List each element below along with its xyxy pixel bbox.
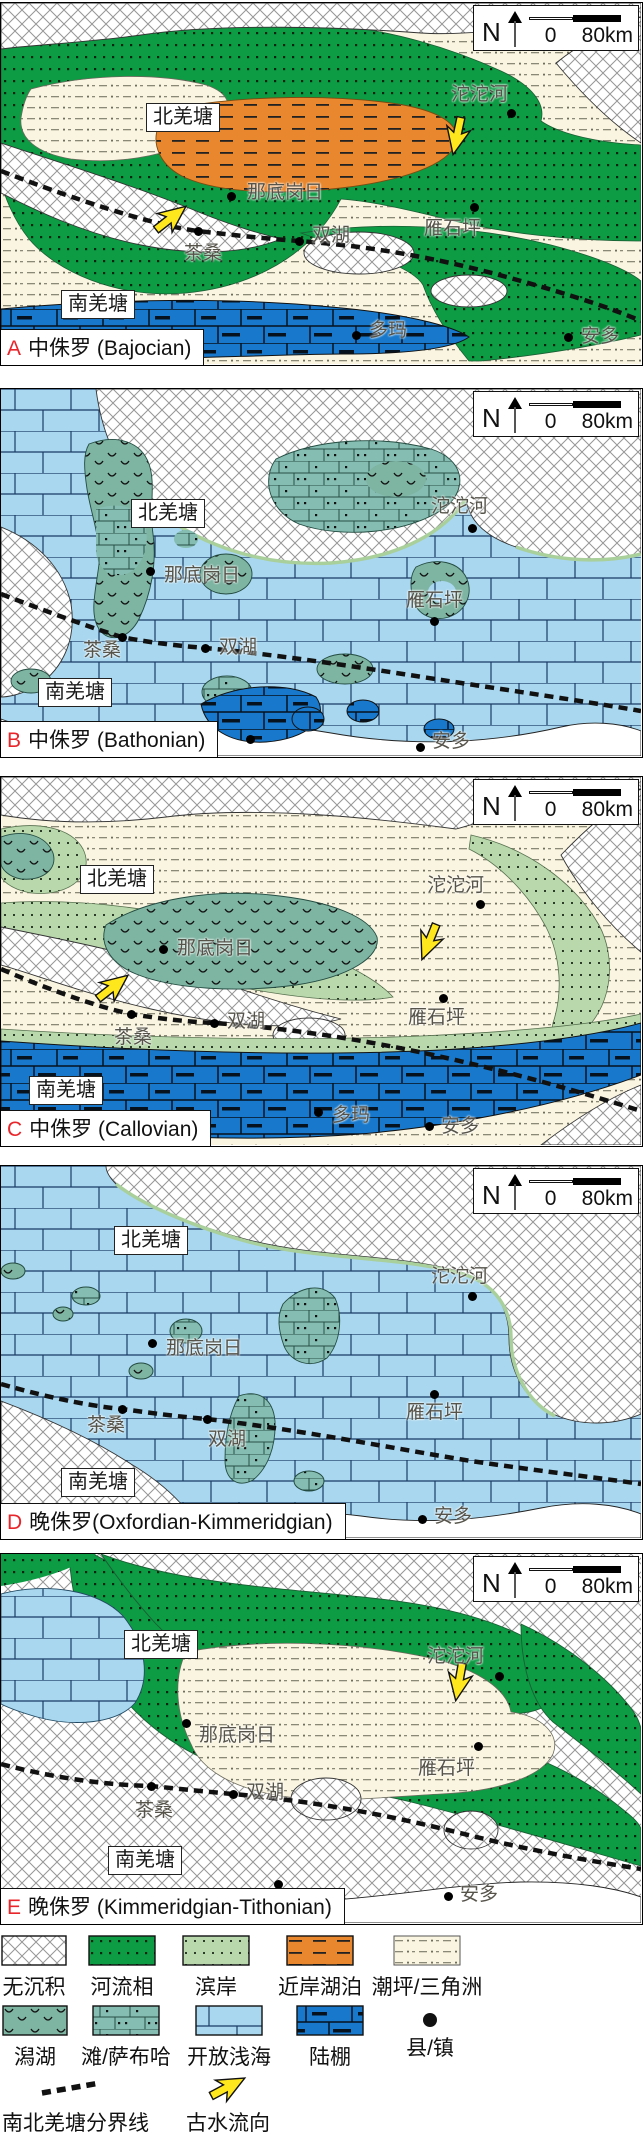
panel-letter: B <box>7 729 21 752</box>
scale-bar: 080km <box>529 1566 633 1597</box>
legend-swatch-tidal-flat-delta <box>394 1936 460 1965</box>
town-label: 多玛 <box>369 321 407 341</box>
region-label-box: 南羌塘 <box>108 1846 182 1875</box>
town-label: 双湖 <box>227 1012 265 1032</box>
sabkha-patch <box>294 1471 324 1491</box>
town-dot <box>227 192 236 201</box>
no-deposition-lens <box>431 275 507 307</box>
town-label: 雁石坪 <box>424 219 481 239</box>
town-label: 双湖 <box>312 226 350 246</box>
town-dot <box>229 1790 238 1799</box>
legend-swatch-fluvial <box>89 1936 155 1965</box>
town-dot <box>182 1719 191 1728</box>
town-dot <box>444 1892 453 1901</box>
town-dot <box>418 1515 427 1524</box>
scale-bar: 080km <box>529 789 633 820</box>
map-panel-bathonian: N 080km 北羌塘南羌塘沱沱河那底岗日雁石坪茶桑双湖安多 B中侏罗 (Bat… <box>0 388 643 758</box>
north-label: N <box>482 1570 501 1596</box>
map-panel-oxfordian-kimmeridgian: N 080km 北羌塘南羌塘沱沱河那底岗日雁石坪茶桑双湖安多 D晚侏罗(Oxfo… <box>0 1165 643 1540</box>
town-label: 双湖 <box>246 1783 284 1803</box>
town-label: 茶桑 <box>114 1028 152 1048</box>
north-arrow-icon <box>508 785 522 821</box>
town-dot <box>201 644 210 653</box>
lagoon-patch <box>366 461 426 497</box>
town-label: 那底岗日 <box>199 1726 275 1746</box>
north-arrow-icon <box>508 397 522 433</box>
town-label: 那底岗日 <box>166 1339 242 1359</box>
panel-stage: 晚侏罗 (Kimmeridgian-Tithonian) <box>28 1896 332 1919</box>
lagoon-patch <box>53 1307 73 1321</box>
region-label-box: 南羌塘 <box>61 290 135 319</box>
town-dot <box>564 333 573 342</box>
panel-letter: C <box>7 1118 22 1141</box>
scale-bar: 080km <box>529 15 633 46</box>
town-dot <box>314 1108 323 1117</box>
town-dot <box>430 617 439 626</box>
town-label: 安多 <box>441 1117 479 1137</box>
town-label: 茶桑 <box>87 1416 125 1436</box>
legend-item-tidal-flat-delta: 潮坪/三角洲 <box>362 1935 492 1998</box>
north-arrow-icon <box>508 1562 522 1598</box>
legend-swatch-nearshore-lake <box>287 1936 353 1965</box>
shelf-patch <box>292 707 324 731</box>
sabkha-patch <box>279 1288 340 1364</box>
boundary-line-swatch <box>38 2075 104 2101</box>
town-dot <box>416 743 425 752</box>
town-label: 沱沱河 <box>427 876 484 896</box>
region-label-box: 南羌塘 <box>61 1468 135 1497</box>
north-label: N <box>482 793 501 819</box>
town-dot <box>470 203 479 212</box>
town-dot <box>194 227 203 236</box>
region-label-box: 南羌塘 <box>38 678 112 707</box>
town-label: 安多 <box>432 732 470 752</box>
town-label: 多玛 <box>332 1106 370 1126</box>
panel-title: B中侏罗 (Bathonian) <box>1 721 218 757</box>
no-deposition-lens <box>291 1778 361 1820</box>
panel-letter: E <box>7 1896 21 1919</box>
town-label: 安多 <box>434 1507 472 1527</box>
town-dot <box>495 1672 504 1681</box>
town-label: 安多 <box>460 1885 498 1905</box>
legend-swatch-open-shallow-sea <box>196 2006 262 2035</box>
facies-map-kimmeridgian-tithonian <box>1 1554 641 1923</box>
town-dot <box>352 331 361 340</box>
panel-title: D晚侏罗(Oxfordian-Kimmeridgian) <box>1 1503 346 1539</box>
town-dot <box>147 1782 156 1791</box>
north-label: N <box>482 405 501 431</box>
paleogeography-figure: N 080km 北羌塘南羌塘沱沱河那底岗日双湖茶桑雁石坪多玛安多 A中侏罗 (B… <box>0 0 643 2132</box>
town-dot <box>468 1292 477 1301</box>
shelf-patch <box>347 700 379 722</box>
town-label: 那底岗日 <box>164 566 240 586</box>
scale-zero: 0 <box>545 25 557 46</box>
legend: 无沉积 河流相 滨岸 近岸湖泊 潮坪/三角洲 潟湖 滩/萨布哈 开放浅海 陆棚 … <box>0 1925 643 2132</box>
panel-stage: 晚侏罗(Oxfordian-Kimmeridgian) <box>29 1511 332 1534</box>
legend-swatch-sabkha <box>93 2006 159 2035</box>
scale-box: N 080km <box>473 1168 639 1214</box>
panel-stage: 中侏罗 (Callovian) <box>29 1118 198 1141</box>
panel-title: E晚侏罗 (Kimmeridgian-Tithonian) <box>1 1888 345 1924</box>
town-dot <box>474 1742 483 1751</box>
scale-bar: 080km <box>529 1178 633 1209</box>
town-label: 雁石坪 <box>406 1403 463 1423</box>
legend-swatch-shore <box>183 1936 249 1965</box>
town-label: 那底岗日 <box>247 183 323 203</box>
north-arrow-icon <box>508 1174 522 1210</box>
town-dot <box>439 994 448 1003</box>
legend-swatch-lagoon <box>3 2006 67 2035</box>
town-dot <box>210 1019 219 1028</box>
town-label: 双湖 <box>208 1430 246 1450</box>
paleocurrent-arrow-swatch <box>198 2067 258 2107</box>
town-label: 茶桑 <box>83 641 121 661</box>
region-label-box: 北羌塘 <box>131 499 205 528</box>
town-label: 双湖 <box>219 638 257 658</box>
sabkha-patch <box>72 1287 100 1305</box>
town-dot <box>425 1122 434 1131</box>
town-dot <box>246 735 255 744</box>
lagoon-patch <box>1 1263 25 1279</box>
map-panel-bajocian: N 080km 北羌塘南羌塘沱沱河那底岗日双湖茶桑雁石坪多玛安多 A中侏罗 (B… <box>0 2 643 366</box>
panel-letter: D <box>7 1511 22 1534</box>
town-dot <box>430 1390 439 1399</box>
boundary-line-label: 南北羌塘分界线 <box>2 2107 149 2132</box>
town-dot <box>507 109 516 118</box>
town-label: 沱沱河 <box>451 85 508 105</box>
lagoon-patch <box>317 654 373 684</box>
town-label: 雁石坪 <box>408 1008 465 1028</box>
panel-title: A中侏罗 (Bajocian) <box>1 329 204 365</box>
town-label: 那底岗日 <box>177 939 253 959</box>
scale-bar: 080km <box>529 401 633 432</box>
scale-box: N 080km <box>473 779 639 825</box>
town-dot <box>295 237 304 246</box>
town-label: 雁石坪 <box>418 1759 475 1779</box>
town-dot <box>468 524 477 533</box>
region-label-box: 北羌塘 <box>114 1226 188 1255</box>
town-label: 沱沱河 <box>431 497 488 517</box>
town-dot <box>146 567 155 576</box>
town-label: 安多 <box>581 327 619 347</box>
town-dot <box>118 1405 127 1414</box>
lagoon-patch <box>129 1363 153 1379</box>
town-label: 沱沱河 <box>431 1267 488 1287</box>
scale-box: N 080km <box>473 391 639 437</box>
region-label-box: 北羌塘 <box>80 865 154 894</box>
region-label-box: 北羌塘 <box>124 1630 198 1659</box>
town-label: 沱沱河 <box>427 1647 484 1667</box>
town-dot <box>148 1339 157 1348</box>
north-arrow-icon <box>508 11 522 47</box>
panel-stage: 中侏罗 (Bajocian) <box>28 337 191 360</box>
town-dot <box>203 1415 212 1424</box>
town-dot <box>127 1010 136 1019</box>
region-label-box: 北羌塘 <box>146 103 220 132</box>
panel-stage: 中侏罗 (Bathonian) <box>28 729 205 752</box>
map-panel-kimmeridgian-tithonian: N 080km 北羌塘南羌塘沱沱河那底岗日雁石坪茶桑双湖安多 E晚侏罗 (Kim… <box>0 1553 643 1925</box>
sabkha-patch <box>174 530 198 548</box>
north-label: N <box>482 19 501 45</box>
town-dot <box>476 900 485 909</box>
legend-item-town: 县/镇 <box>365 2005 495 2059</box>
panel-title: C中侏罗 (Callovian) <box>1 1110 211 1146</box>
scale-box: N 080km <box>473 1556 639 1602</box>
legend-swatch-shelf <box>297 2006 363 2035</box>
region-label-box: 南羌塘 <box>29 1076 103 1105</box>
panel-letter: A <box>7 337 21 360</box>
north-label: N <box>482 1182 501 1208</box>
town-dot-swatch <box>423 2013 437 2027</box>
town-label: 茶桑 <box>184 244 222 264</box>
town-label: 雁石坪 <box>406 591 463 611</box>
paleocurrent-label: 古水流向 <box>186 2107 270 2132</box>
town-dot <box>159 945 168 954</box>
map-panel-callovian: N 080km 北羌塘南羌塘沱沱河那底岗日雁石坪茶桑双湖多玛安多 C中侏罗 (C… <box>0 776 643 1147</box>
town-label: 茶桑 <box>135 1801 173 1821</box>
scale-box: N 080km <box>473 5 639 51</box>
scale-distance: 80km <box>582 25 633 46</box>
